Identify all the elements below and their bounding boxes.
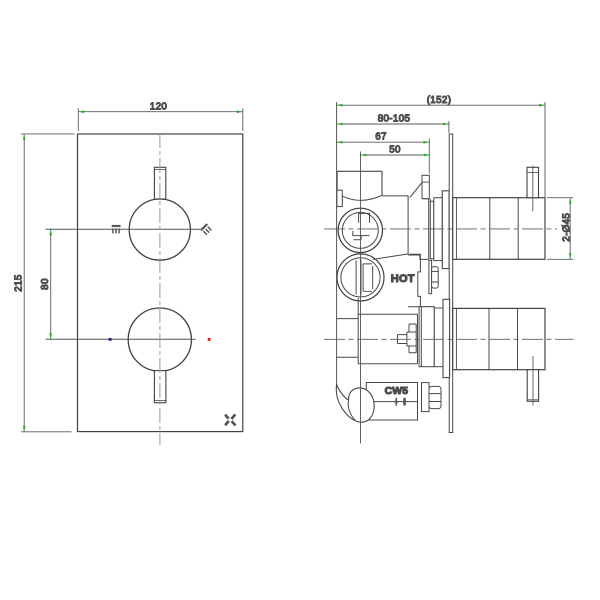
svg-text:(152): (152) — [427, 95, 452, 106]
svg-text:HOT: HOT — [391, 273, 415, 285]
svg-text:CW5: CW5 — [385, 386, 409, 397]
svg-text:215: 215 — [14, 274, 25, 292]
svg-text:50: 50 — [389, 145, 401, 156]
svg-text:80: 80 — [40, 278, 51, 290]
svg-text:2-Ø45: 2-Ø45 — [561, 213, 572, 242]
svg-text:80-105: 80-105 — [378, 114, 411, 125]
svg-text:67: 67 — [375, 132, 387, 143]
svg-text:120: 120 — [150, 101, 168, 112]
